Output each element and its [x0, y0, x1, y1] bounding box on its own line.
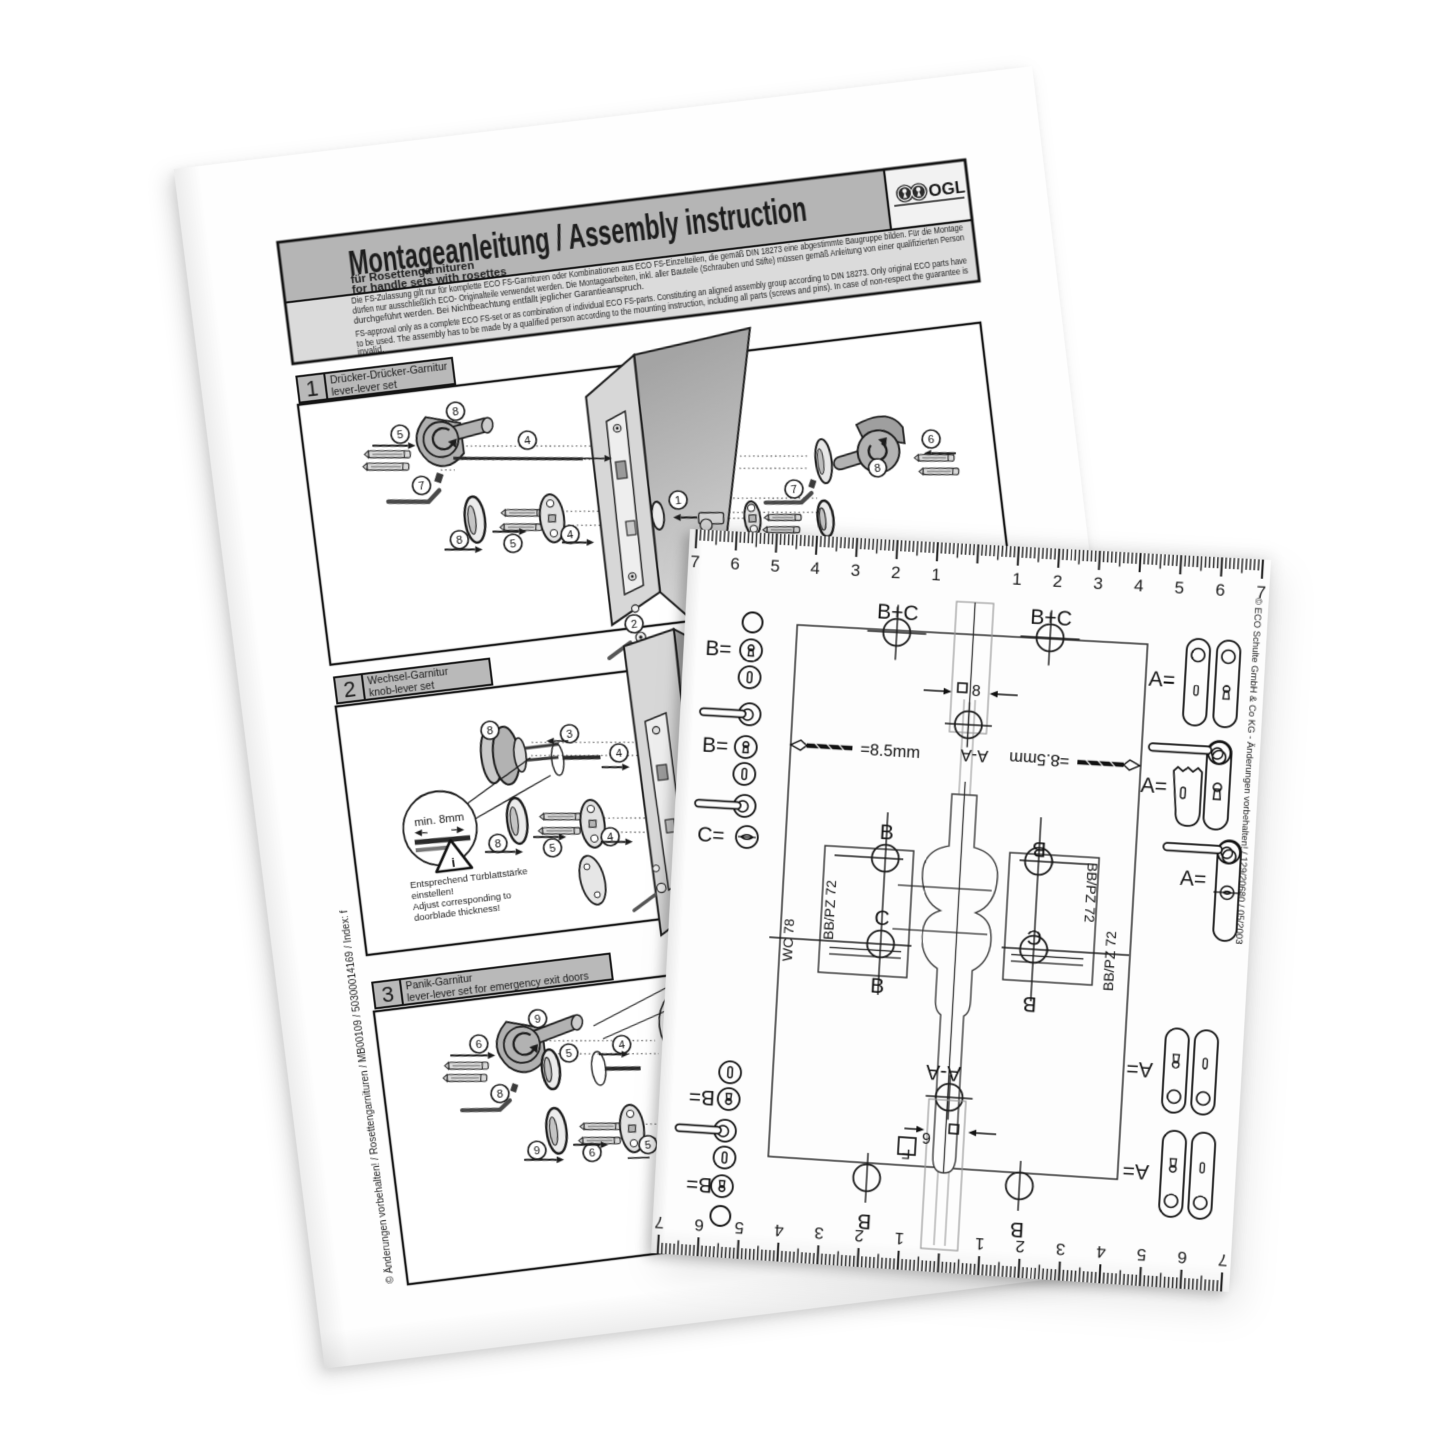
svg-text:6: 6 — [1215, 580, 1226, 600]
svg-text:A=: A= — [1140, 774, 1168, 799]
svg-text:=8.5mm: =8.5mm — [1009, 748, 1070, 770]
svg-text:B=: B= — [705, 637, 732, 662]
svg-text:A-A: A-A — [925, 1060, 961, 1085]
svg-text:1: 1 — [931, 565, 942, 585]
svg-text:BB/PZ 72: BB/PZ 72 — [820, 879, 839, 940]
svg-text:B=: B= — [688, 1085, 715, 1110]
svg-text:1: 1 — [674, 494, 682, 508]
svg-text:6: 6 — [927, 433, 935, 447]
svg-text:B: B — [870, 974, 885, 998]
svg-text:5: 5 — [770, 556, 780, 576]
svg-text:6: 6 — [921, 1129, 931, 1147]
svg-text:1: 1 — [1012, 569, 1023, 589]
svg-text:C: C — [1026, 925, 1042, 949]
svg-text:7: 7 — [790, 483, 798, 497]
svg-text:BB/PZ 72: BB/PZ 72 — [1081, 862, 1101, 923]
svg-text:4: 4 — [810, 558, 820, 578]
svg-text:2: 2 — [630, 618, 638, 632]
svg-text:B=: B= — [702, 733, 729, 758]
svg-text:5: 5 — [1174, 578, 1185, 598]
svg-text:3: 3 — [1093, 574, 1104, 594]
svg-text:4: 4 — [1133, 576, 1144, 596]
svg-text:B=: B= — [686, 1172, 713, 1197]
svg-text:6: 6 — [730, 554, 740, 574]
svg-text:A-A: A-A — [960, 745, 989, 765]
svg-text:2: 2 — [891, 563, 901, 583]
svg-text:F: F — [901, 1146, 910, 1163]
svg-text:B: B — [1022, 992, 1037, 1016]
svg-text:2: 2 — [1052, 571, 1063, 591]
svg-text:A=: A= — [1179, 867, 1207, 892]
svg-text:C=: C= — [697, 823, 725, 848]
svg-text:A=: A= — [1126, 1056, 1154, 1081]
svg-text:A=: A= — [1122, 1159, 1150, 1184]
svg-text:B: B — [1032, 837, 1047, 861]
svg-text:B: B — [857, 1209, 872, 1233]
svg-text:B: B — [1009, 1217, 1024, 1241]
svg-text:WC 78: WC 78 — [779, 918, 797, 962]
svg-text:A=: A= — [1148, 667, 1176, 692]
svg-text:8: 8 — [971, 683, 981, 701]
svg-text:3: 3 — [850, 561, 860, 581]
svg-text:=8.5mm: =8.5mm — [860, 741, 921, 763]
svg-text:B: B — [879, 821, 894, 845]
svg-text:BB/PZ 72: BB/PZ 72 — [1100, 930, 1120, 991]
svg-text:C: C — [874, 906, 890, 930]
svg-text:8: 8 — [874, 462, 882, 476]
